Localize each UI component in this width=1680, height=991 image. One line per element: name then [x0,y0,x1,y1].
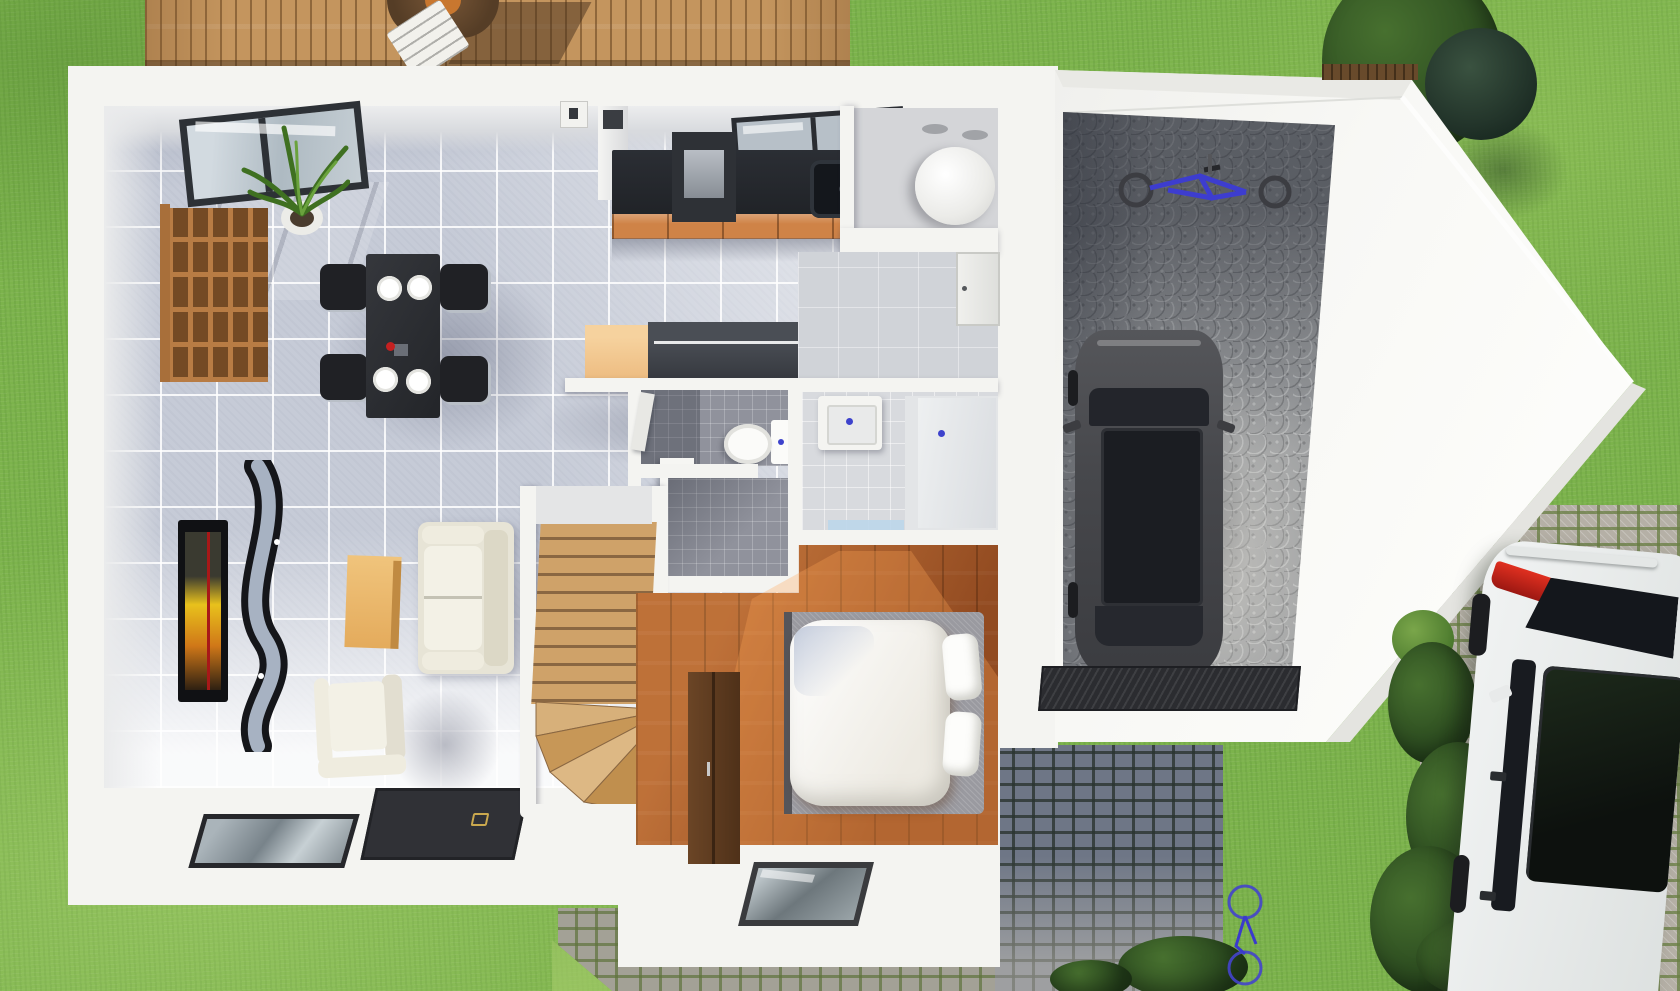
tv-screen-line [207,532,210,690]
plate [377,276,402,301]
bed [784,612,984,814]
sofa-seat-split [424,596,482,599]
plate [407,275,432,300]
wardrobe [688,672,740,864]
appliance-top [684,150,724,198]
wardrobe-seam [712,672,715,864]
centerpiece-red [386,342,395,351]
sofa-arm-top [422,526,484,544]
dining-chair [440,356,488,402]
basin-drain-dot [846,418,853,425]
mat-logo [471,813,490,826]
vanity-basin [818,396,882,450]
wc-bottom-wall [628,464,758,478]
centerpiece-vase [394,344,408,356]
car-wheel [1068,582,1078,618]
walk-in-shower [905,396,998,532]
stair-top-landing [536,486,652,524]
white-car [1447,538,1680,991]
plate [373,367,398,392]
island-tan-unit [585,325,648,385]
car-wheel [1068,370,1078,406]
shower-handle-dot [938,430,945,437]
white-car-wheel [1468,593,1491,656]
left-wall-face [104,106,158,788]
cooktop-appliance [672,132,736,222]
white-car-rear-window [1524,576,1680,659]
sofa-arm-bottom [422,652,484,670]
white-car-door-handle [1490,771,1507,781]
coffee-table [344,555,401,649]
duvet-shadow-fold [794,626,874,696]
window-glint [743,122,803,134]
door-mat [360,788,529,860]
dining-chair [320,264,368,310]
chimney-small-flue [569,108,578,119]
floor-plan-scene [0,0,1680,991]
floor-glass-panel [188,814,359,868]
lower-hall [668,478,788,578]
white-car-door-handle [1479,891,1496,901]
utility-bottom-wall [840,228,998,252]
car-rear-window [1095,606,1203,646]
bath-bottom-wall [802,530,998,546]
chimney-small [560,101,588,128]
shower-door [918,398,996,528]
car-windshield [1089,388,1209,426]
armchair [313,674,416,779]
pillow [942,711,982,777]
pillow [941,633,983,702]
utility-left-wall [840,106,854,238]
car-roof-glass [1101,428,1203,606]
sofa-seats [424,546,482,650]
wardrobe-handle [707,762,710,776]
entry-door [956,252,1000,326]
sofa-back [484,530,508,666]
sofa [418,522,514,674]
black-car [1075,330,1223,678]
potted-plant [238,118,350,240]
plate [406,369,431,394]
small-bicycle [1212,876,1278,991]
lower-hall-shadow [668,478,788,578]
dining-table [366,254,440,418]
hedge-planter [1322,64,1418,80]
toilet-bowl [724,424,772,464]
cobble-strip-bottom [622,965,1002,991]
dining-chair [320,354,368,400]
basin-inner [827,405,877,445]
curved-tv-stand [220,460,300,752]
armchair-seat [328,681,387,752]
dining-area [310,250,510,425]
bedroom-glass-panel [738,862,874,926]
ceiling-vent [962,130,988,140]
water-heater [915,147,995,225]
flush-dot [778,439,784,445]
ceiling-vent [922,124,948,134]
dining-chair [440,264,488,310]
tv-screen [185,532,221,690]
terrace-deck [145,0,850,67]
mountain-bike [1112,146,1307,210]
bottom-plants-small [1050,960,1132,991]
door-handle [962,286,967,291]
white-car-cabin-glass [1525,665,1680,893]
car-hood-glint [1097,340,1201,346]
garage-entry-mat [1038,666,1301,711]
shower-glass-screen [828,520,904,530]
shelf-side-face [160,204,170,382]
glass-glint [760,869,815,883]
